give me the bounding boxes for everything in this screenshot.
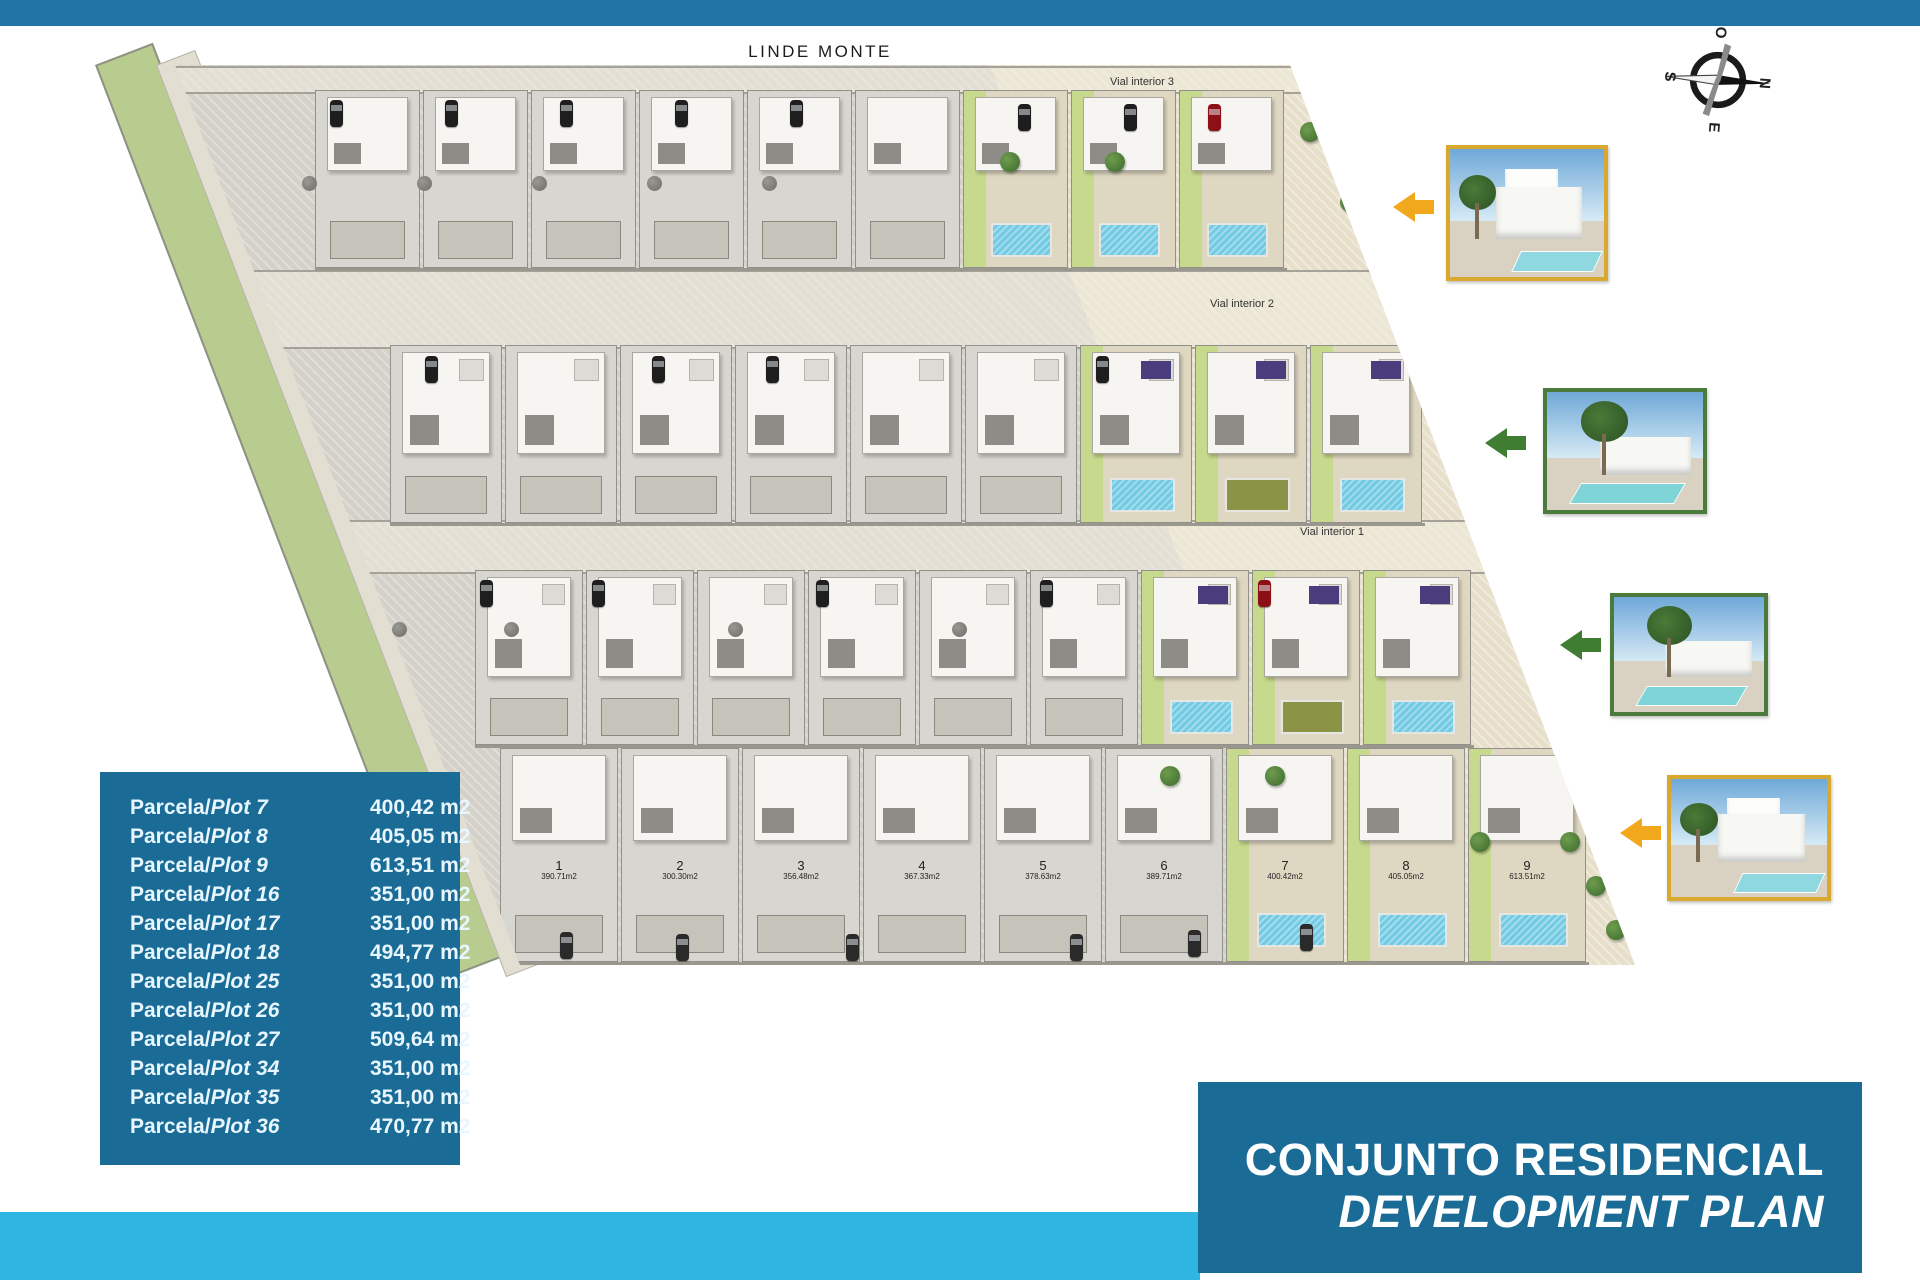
plot-29: 29351.00m2	[423, 90, 528, 268]
palm-trunk	[1667, 638, 1671, 677]
road-label: Vial interior 3	[1110, 76, 1174, 88]
legend-label-plot: Plot 16	[211, 883, 280, 906]
tree-icon	[1606, 920, 1626, 940]
legend-plot-area-value: 351,00 m2	[370, 970, 470, 994]
car-icon	[675, 100, 688, 127]
legend-label-plot: Plot 35	[211, 1086, 280, 1109]
house-footprint	[977, 352, 1065, 454]
plot-area: 367.33m2	[864, 873, 980, 882]
legend-plot-area-value: 494,77 m2	[370, 941, 470, 965]
plot-label: 8405.05m2	[1348, 859, 1464, 882]
driveway	[520, 476, 602, 514]
legend-plot-area-value: 351,00 m2	[370, 883, 470, 907]
plot-30: 30351.00m2	[531, 90, 636, 268]
car-icon	[1300, 924, 1313, 951]
road-label: Vial interior 1	[1300, 526, 1364, 538]
legend-label-prefix: Parcela/	[130, 1028, 211, 1051]
photo-pool	[1733, 873, 1825, 893]
bush-icon	[728, 622, 743, 637]
legend-plot-label: Parcela/Plot 7	[130, 796, 268, 819]
plot-1: 1390.71m2	[500, 748, 618, 962]
car-icon	[1188, 930, 1201, 957]
legend-plot-area-value: 351,00 m2	[370, 1086, 470, 1110]
legend-plot-label: Parcela/Plot 16	[130, 883, 279, 906]
swimming-pool	[1099, 223, 1161, 257]
swimming-pool	[1340, 478, 1406, 512]
car-icon	[1040, 580, 1053, 607]
bush-icon	[417, 176, 432, 191]
terrace-patch	[334, 143, 361, 165]
terrace-patch	[1050, 639, 1078, 668]
plot-2: 2300.30m2	[621, 748, 739, 962]
legend-plot-area-value: 509,64 m2	[370, 1028, 470, 1052]
car-icon	[560, 932, 573, 959]
legend-label-prefix: Parcela/	[130, 999, 211, 1022]
plot-16: 16351.00m2	[1141, 570, 1249, 745]
house-footprint	[747, 352, 835, 454]
legend-row: Parcela/Plot 27509,64 m2	[130, 1028, 460, 1057]
legend-row: Parcela/Plot 34351,00 m2	[130, 1057, 460, 1086]
house-footprint	[931, 577, 1015, 677]
legend-label-plot: Plot 27	[211, 1028, 280, 1051]
plot-26: 26351.00m2	[1195, 345, 1307, 523]
terrace-patch	[641, 808, 672, 833]
car-icon	[330, 100, 343, 127]
legend-row: Parcela/Plot 17351,00 m2	[130, 912, 460, 941]
legend-row: Parcela/Plot 16351,00 m2	[130, 883, 460, 912]
plot-14: 14351.00m2	[919, 570, 1027, 745]
plot-label: 3356.48m2	[743, 859, 859, 882]
street-label: LINDE MONTE	[690, 42, 950, 62]
legend-plot-label: Parcela/Plot 27	[130, 1028, 279, 1051]
legend-label-prefix: Parcela/	[130, 854, 211, 877]
legend-label-plot: Plot 7	[211, 796, 268, 819]
tree-icon	[1482, 512, 1502, 532]
driveway	[546, 221, 621, 259]
photo-pool	[1635, 686, 1748, 706]
swimming-pool	[1110, 478, 1176, 512]
driveway	[438, 221, 513, 259]
house-footprint	[543, 97, 624, 171]
driveway	[878, 915, 966, 953]
swimming-pool	[1207, 223, 1269, 257]
left-arrow-icon	[1393, 192, 1434, 222]
driveway	[823, 698, 901, 736]
tree-icon	[1415, 372, 1435, 392]
terrace-patch	[1330, 415, 1359, 445]
tree-icon	[1450, 442, 1470, 462]
arrow-tail	[1642, 826, 1661, 840]
plot-area: 300.30m2	[622, 873, 738, 882]
bush-icon	[952, 622, 967, 637]
plot-label: 9613.51m2	[1469, 859, 1585, 882]
compass-e-label: E	[1705, 122, 1723, 133]
tree-icon	[1368, 256, 1388, 276]
roof-terrace	[689, 359, 713, 381]
bush-icon	[392, 622, 407, 637]
car-icon	[425, 356, 438, 383]
title-block: CONJUNTO RESIDENCIAL DEVELOPMENT PLAN	[1198, 1082, 1862, 1273]
swimming-pool	[991, 223, 1053, 257]
plot-34: 34351.00m2	[963, 90, 1068, 268]
terrace-patch	[495, 639, 523, 668]
swimming-pool	[1499, 913, 1568, 947]
terrace-patch	[1272, 639, 1300, 668]
house-footprint	[1207, 352, 1295, 454]
plot-number: 7	[1227, 859, 1343, 873]
plot-area: 389.71m2	[1106, 873, 1222, 882]
house-footprint	[867, 97, 948, 171]
car-icon	[1124, 104, 1137, 131]
car-icon	[1096, 356, 1109, 383]
legend-label-prefix: Parcela/	[130, 825, 211, 848]
bush-icon	[302, 176, 317, 191]
roof-terrace	[653, 584, 676, 606]
plot-4: 4367.33m2	[863, 748, 981, 962]
legend-plot-label: Parcela/Plot 25	[130, 970, 279, 993]
legend-label-prefix: Parcela/	[130, 1086, 211, 1109]
tree-icon	[1300, 122, 1320, 142]
tree-icon	[1560, 832, 1580, 852]
roof-terrace	[804, 359, 828, 381]
legend-row: Parcela/Plot 25351,00 m2	[130, 970, 460, 999]
terrace-patch	[870, 415, 899, 445]
terrace-patch	[658, 143, 685, 165]
villa-photo	[1446, 145, 1608, 281]
driveway	[490, 698, 568, 736]
plot-8: 8405.05m2	[1347, 748, 1465, 962]
plot-label: 2300.30m2	[622, 859, 738, 882]
plot-number: 6	[1106, 859, 1222, 873]
car-icon	[560, 100, 573, 127]
arrow-head	[1560, 630, 1582, 660]
tree-icon	[1532, 672, 1552, 692]
legend-label-plot: Plot 26	[211, 999, 280, 1022]
house-footprint	[862, 352, 950, 454]
legend-label-plot: Plot 36	[211, 1115, 280, 1138]
house-footprint	[1322, 352, 1410, 454]
tree-icon	[1000, 152, 1020, 172]
olive-lawn	[1281, 700, 1344, 734]
car-icon	[766, 356, 779, 383]
top-bar	[0, 0, 1920, 26]
plot-number: 5	[985, 859, 1101, 873]
terrace-patch	[550, 143, 577, 165]
plot-row: 10349.69m211351.00m212351.00m213351.00m2…	[475, 570, 1474, 748]
legend-plot-area-value: 351,00 m2	[370, 999, 470, 1023]
legend-plot-area-value: 405,05 m2	[370, 825, 470, 849]
legend-plot-label: Parcela/Plot 17	[130, 912, 279, 935]
driveway	[762, 221, 837, 259]
driveway	[865, 476, 947, 514]
house-footprint	[517, 352, 605, 454]
roof-terrace	[986, 584, 1009, 606]
roof-terrace	[919, 359, 943, 381]
legend-plot-label: Parcela/Plot 36	[130, 1115, 279, 1138]
villa-house	[1665, 641, 1752, 678]
legend-plot-area-value: 400,42 m2	[370, 796, 470, 820]
compass-o-label: O	[1712, 26, 1730, 39]
plot-area: 356.48m2	[743, 873, 859, 882]
terrace-patch	[717, 639, 745, 668]
solar-panel	[1256, 361, 1286, 379]
bush-icon	[647, 176, 662, 191]
house-footprint	[487, 577, 571, 677]
tree-icon	[1340, 192, 1360, 212]
left-arrow-icon	[1560, 630, 1601, 660]
driveway	[330, 221, 405, 259]
plot-label: 6389.71m2	[1106, 859, 1222, 882]
roof-terrace	[574, 359, 598, 381]
driveway	[1045, 698, 1123, 736]
terrace-patch	[883, 808, 914, 833]
terrace-patch	[755, 415, 784, 445]
tree-icon	[1265, 766, 1285, 786]
house-footprint	[875, 755, 969, 841]
terrace-patch	[828, 639, 856, 668]
swimming-pool	[1392, 700, 1455, 734]
terrace-patch	[1215, 415, 1244, 445]
terrace-patch	[939, 639, 967, 668]
villa-photo	[1610, 593, 1768, 716]
bottom-cyan-bar	[0, 1212, 1200, 1280]
road-label: Vial interior 2	[1210, 298, 1274, 310]
palm-trunk	[1696, 829, 1700, 862]
plot-12: 12351.00m2	[697, 570, 805, 745]
legend-plot-area-value: 470,77 m2	[370, 1115, 470, 1139]
villa-house	[1718, 814, 1805, 861]
arrow-head	[1393, 192, 1415, 222]
plot-7: 7400.42m2	[1226, 748, 1344, 962]
bush-icon	[532, 176, 547, 191]
plot-label: 1390.71m2	[501, 859, 617, 882]
plot-number: 8	[1348, 859, 1464, 873]
driveway	[750, 476, 832, 514]
legend-plot-label: Parcela/Plot 35	[130, 1086, 279, 1109]
legend-label-prefix: Parcela/	[130, 970, 211, 993]
legend-plot-area-value: 351,00 m2	[370, 1057, 470, 1081]
driveway	[654, 221, 729, 259]
bush-icon	[504, 622, 519, 637]
driveway	[757, 915, 845, 953]
house-footprint	[1359, 755, 1453, 841]
driveway	[870, 221, 945, 259]
legend-row: Parcela/Plot 35351,00 m2	[130, 1086, 460, 1115]
legend-plot-label: Parcela/Plot 8	[130, 825, 268, 848]
plot-number: 9	[1469, 859, 1585, 873]
car-icon	[846, 934, 859, 961]
car-icon	[676, 934, 689, 961]
legend-plot-label: Parcela/Plot 34	[130, 1057, 279, 1080]
car-icon	[652, 356, 665, 383]
legend-plot-label: Parcela/Plot 26	[130, 999, 279, 1022]
legend-label-prefix: Parcela/	[130, 941, 211, 964]
terrace-patch	[762, 808, 793, 833]
roof-terrace	[875, 584, 898, 606]
villa-house	[1496, 187, 1582, 238]
car-icon	[592, 580, 605, 607]
legend-label-prefix: Parcela/	[130, 883, 211, 906]
legend-label-plot: Plot 9	[211, 854, 268, 877]
legend-plot-area-value: 613,51 m2	[370, 854, 470, 878]
photo-pool	[1511, 251, 1603, 272]
plot-area: 378.63m2	[985, 873, 1101, 882]
photo-pool	[1569, 483, 1686, 504]
house-footprint	[1480, 755, 1574, 841]
driveway	[515, 915, 603, 953]
title-line-spanish: CONJUNTO RESIDENCIAL	[1198, 1134, 1824, 1186]
bush-icon	[762, 176, 777, 191]
villa-photo	[1667, 775, 1831, 901]
car-icon	[790, 100, 803, 127]
terrace-patch	[520, 808, 551, 833]
roof-terrace	[764, 584, 787, 606]
plot-row: 1390.71m22300.30m23356.48m24367.33m25378…	[500, 748, 1589, 965]
car-icon	[1258, 580, 1271, 607]
house-footprint	[651, 97, 732, 171]
plot-legend: Parcela/Plot 7400,42 m2Parcela/Plot 8405…	[100, 772, 460, 1165]
title-line-english: DEVELOPMENT PLAN	[1198, 1186, 1824, 1238]
plot-area: 405.05m2	[1348, 873, 1464, 882]
terrace-patch	[525, 415, 554, 445]
olive-lawn	[1225, 478, 1291, 512]
terrace-patch	[1004, 808, 1035, 833]
tree-icon	[1160, 766, 1180, 786]
palm-trunk	[1602, 434, 1606, 474]
legend-plot-area-value: 351,00 m2	[370, 912, 470, 936]
plot-27: 27509.64m2	[1310, 345, 1422, 523]
villa-house	[1600, 437, 1690, 475]
swimming-pool	[1257, 913, 1326, 947]
left-arrow-icon	[1620, 818, 1661, 848]
arrow-tail	[1415, 200, 1434, 214]
legend-row: Parcela/Plot 9613,51 m2	[130, 854, 460, 883]
left-arrow-icon	[1485, 428, 1526, 458]
terrace-patch	[606, 639, 634, 668]
plot-area: 400.42m2	[1227, 873, 1343, 882]
interior-road: Vial interior 2	[90, 270, 1690, 349]
house-footprint	[512, 755, 606, 841]
tree-icon	[1105, 152, 1125, 172]
roof-terrace	[1097, 584, 1120, 606]
terrace-patch	[1100, 415, 1129, 445]
compass-n-label: N	[1756, 77, 1774, 89]
legend-label-plot: Plot 18	[211, 941, 280, 964]
tree-icon	[1502, 602, 1522, 622]
plot-23: 23351.00m2	[850, 345, 962, 523]
solar-panel	[1309, 586, 1339, 604]
roof-terrace	[542, 584, 565, 606]
plot-number: 2	[622, 859, 738, 873]
solar-panel	[1198, 586, 1228, 604]
solar-panel	[1371, 361, 1401, 379]
plot-label: 5378.63m2	[985, 859, 1101, 882]
plot-5: 5378.63m2	[984, 748, 1102, 962]
car-icon	[1070, 934, 1083, 961]
driveway	[980, 476, 1062, 514]
house-footprint	[633, 755, 727, 841]
solar-panel	[1420, 586, 1450, 604]
arrow-tail	[1507, 436, 1526, 450]
terrace-patch	[1161, 639, 1189, 668]
plot-21: 21351.00m2	[620, 345, 732, 523]
legend-label-plot: Plot 8	[211, 825, 268, 848]
plot-number: 4	[864, 859, 980, 873]
legend-label-prefix: Parcela/	[130, 912, 211, 935]
plot-area: 390.71m2	[501, 873, 617, 882]
terrace-patch	[1198, 143, 1225, 165]
solar-panel	[1141, 361, 1171, 379]
car-icon	[816, 580, 829, 607]
plot-9: 9613.51m2	[1468, 748, 1586, 962]
driveway	[712, 698, 790, 736]
legend-row: Parcela/Plot 8405,05 m2	[130, 825, 460, 854]
plot-row: 19345.38m220351.00m221351.00m222351.00m2…	[390, 345, 1425, 526]
house-footprint	[1191, 97, 1272, 171]
house-footprint	[632, 352, 720, 454]
house-footprint	[996, 755, 1090, 841]
car-icon	[1208, 104, 1221, 131]
driveway	[405, 476, 487, 514]
legend-label-plot: Plot 17	[211, 912, 280, 935]
terrace-patch	[1125, 808, 1156, 833]
legend-label-prefix: Parcela/	[130, 1115, 211, 1138]
terrace-patch	[1367, 808, 1398, 833]
plot-label: 4367.33m2	[864, 859, 980, 882]
plot-18: 18494.77m2	[1363, 570, 1471, 745]
terrace-patch	[442, 143, 469, 165]
house-footprint	[1153, 577, 1237, 677]
driveway	[601, 698, 679, 736]
legend-plot-label: Parcela/Plot 9	[130, 854, 268, 877]
terrace-patch	[1488, 808, 1519, 833]
house-footprint	[598, 577, 682, 677]
terrace-patch	[985, 415, 1014, 445]
house-footprint	[402, 352, 490, 454]
terrace-patch	[1246, 808, 1277, 833]
plot-22: 22351.00m2	[735, 345, 847, 523]
swimming-pool	[1378, 913, 1447, 947]
house-footprint	[1264, 577, 1348, 677]
plot-19: 19345.38m2	[390, 345, 502, 523]
driveway	[635, 476, 717, 514]
arrow-tail	[1582, 638, 1601, 652]
roof-terrace	[459, 359, 483, 381]
legend-label-plot: Plot 25	[211, 970, 280, 993]
plot-20: 20351.00m2	[505, 345, 617, 523]
house-footprint	[709, 577, 793, 677]
legend-label-plot: Plot 34	[211, 1057, 280, 1080]
tree-icon	[1470, 832, 1490, 852]
terrace-patch	[766, 143, 793, 165]
roof-terrace	[1034, 359, 1058, 381]
plot-number: 3	[743, 859, 859, 873]
car-icon	[480, 580, 493, 607]
terrace-patch	[874, 143, 901, 165]
legend-row: Parcela/Plot 7400,42 m2	[130, 796, 460, 825]
driveway	[934, 698, 1012, 736]
legend-row: Parcela/Plot 18494,77 m2	[130, 941, 460, 970]
legend-row: Parcela/Plot 26351,00 m2	[130, 999, 460, 1028]
house-footprint	[1042, 577, 1126, 677]
arrow-head	[1620, 818, 1642, 848]
swimming-pool	[1170, 700, 1233, 734]
arrow-head	[1485, 428, 1507, 458]
plot-3: 3356.48m2	[742, 748, 860, 962]
plot-area: 613.51m2	[1469, 873, 1585, 882]
legend-label-prefix: Parcela/	[130, 796, 211, 819]
house-footprint	[754, 755, 848, 841]
